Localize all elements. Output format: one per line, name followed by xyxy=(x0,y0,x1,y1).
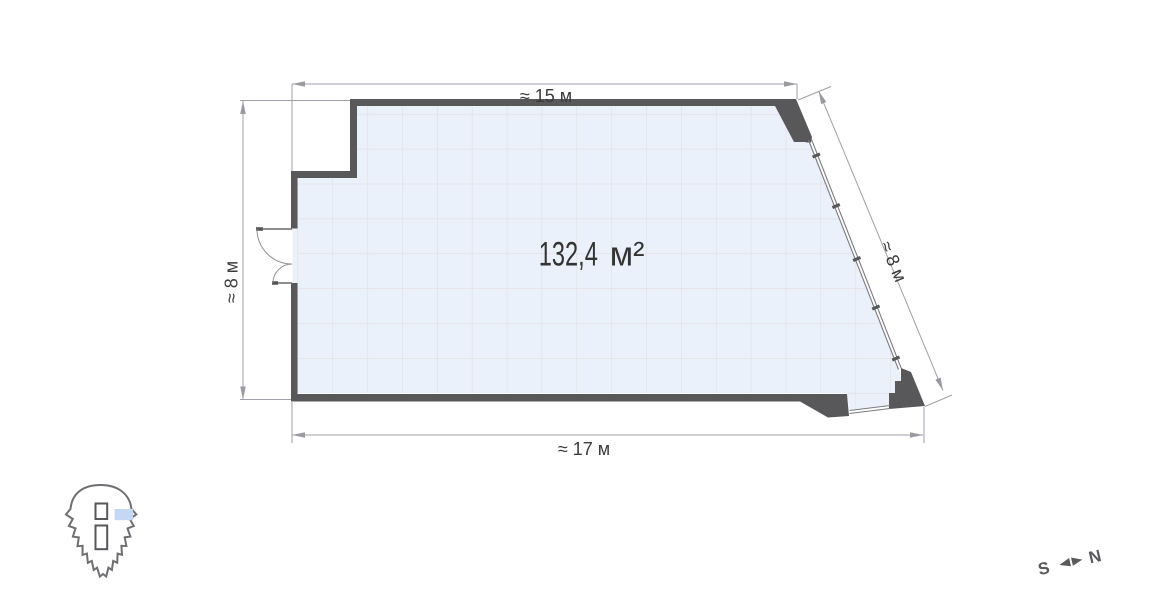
svg-text:м²: м² xyxy=(610,236,645,274)
svg-text:≈ 8 м: ≈ 8 м xyxy=(876,238,911,285)
svg-text:≈ 8 м: ≈ 8 м xyxy=(222,261,242,303)
svg-text:132,4: 132,4 xyxy=(539,237,598,274)
svg-text:N: N xyxy=(1087,546,1103,567)
svg-text:≈ 15 м: ≈ 15 м xyxy=(520,86,572,106)
svg-text:≈ 17 м: ≈ 17 м xyxy=(558,439,610,459)
svg-text:S: S xyxy=(1036,558,1051,579)
